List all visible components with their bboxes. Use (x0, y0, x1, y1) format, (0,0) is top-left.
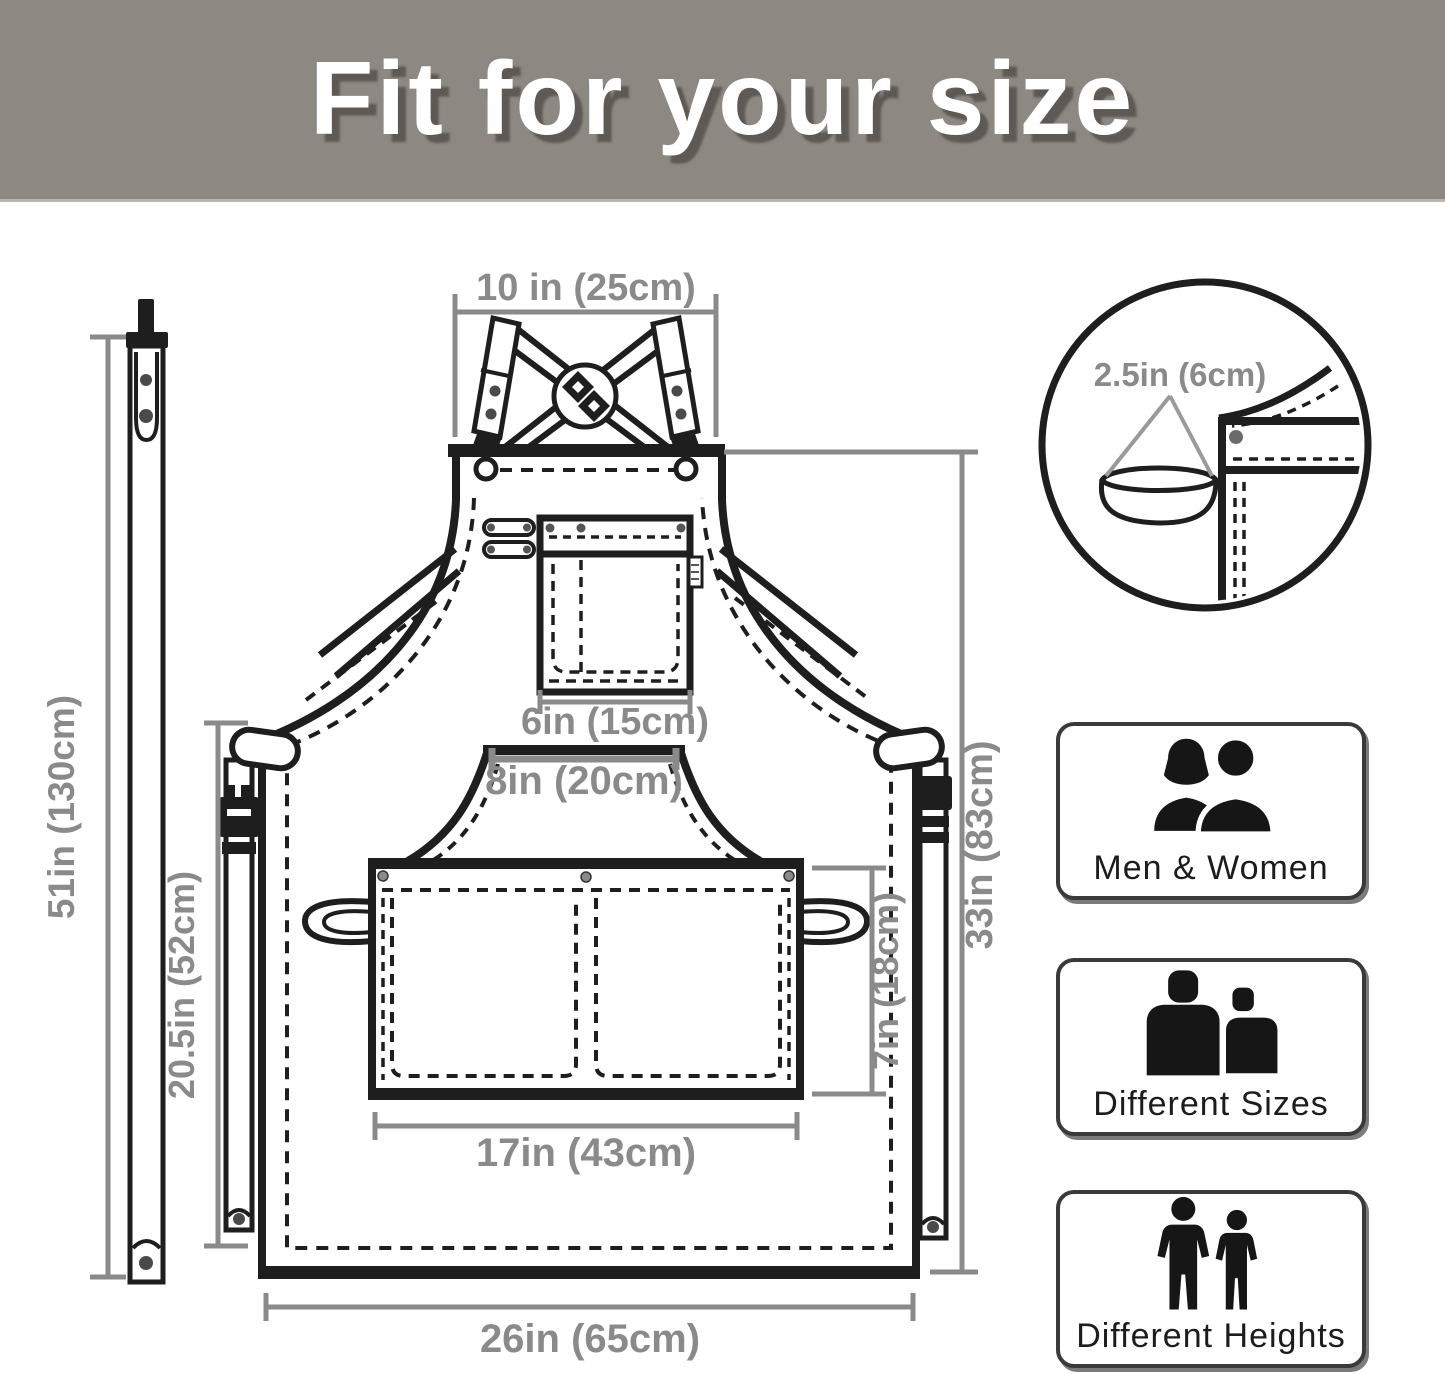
dim-strap-length (90, 337, 126, 1277)
strap-ring-knot (554, 365, 616, 427)
dim-strap-length-label: 51in (130cm) (41, 695, 82, 919)
dim-chest-pocket-label: 6in (15cm) (521, 701, 709, 743)
feature-label: Different Heights (1076, 1317, 1346, 1356)
dim-side-length-label: 20.5in (52cm) (161, 871, 202, 1099)
apron-size-infographic: Fit for your size 51in (130cm) (0, 0, 1445, 1374)
feature-card-different-heights: Different Heights (1056, 1190, 1366, 1368)
different-heights-icon (1060, 1194, 1362, 1317)
feature-card-men-women: Men & Women (1056, 722, 1366, 900)
brand-tag (689, 557, 702, 587)
strap-connector-left (472, 318, 519, 454)
dim-body-length-label: 33in (83cm) (959, 740, 1001, 949)
apron-dimension-diagram: 51in (130cm) 10 in (25cm) (0, 0, 1445, 1374)
feature-label: Different Sizes (1093, 1085, 1328, 1124)
different-sizes-icon (1060, 962, 1362, 1085)
chest-pocket (540, 518, 702, 692)
dim-pocket-height-label: 7in (18cm) (865, 892, 906, 1070)
dim-bottom-width-label: 26in (65cm) (480, 1317, 700, 1361)
dim-pocket-width-label: 17in (43cm) (476, 1131, 696, 1175)
dim-loop-size-label: 2.5in (6cm) (1094, 356, 1266, 393)
loop-detail-circle: 2.5in (6cm) (1042, 282, 1372, 614)
strap-connector-right (653, 318, 700, 454)
dim-waist-panel-label: 8in (20cm) (485, 759, 683, 803)
feature-label: Men & Women (1093, 849, 1328, 888)
men-women-icon (1060, 726, 1362, 849)
feature-card-different-sizes: Different Sizes (1056, 958, 1366, 1136)
dim-neck-width-label: 10 in (25cm) (476, 267, 696, 309)
neck-strap-extended (126, 299, 168, 1282)
